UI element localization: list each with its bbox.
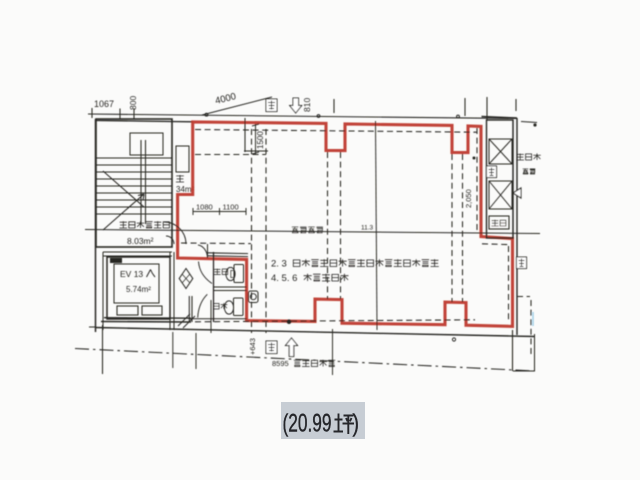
- svg-text:800: 800: [128, 96, 138, 110]
- svg-text:(20.99: (20.99: [283, 410, 332, 438]
- svg-text:810: 810: [302, 98, 312, 112]
- svg-text:2,050: 2,050: [464, 189, 473, 208]
- svg-text:8595: 8595: [272, 359, 289, 368]
- svg-text:): ): [353, 410, 360, 438]
- svg-text:11.3: 11.3: [361, 225, 374, 232]
- svg-text:2. 3: 2. 3: [271, 259, 287, 270]
- svg-text:5.74m²: 5.74m²: [126, 285, 151, 294]
- svg-text:1100: 1100: [223, 203, 239, 212]
- svg-text:1080: 1080: [196, 203, 213, 212]
- svg-text:4. 5. 6: 4. 5. 6: [271, 273, 297, 284]
- svg-text:4000: 4000: [214, 91, 237, 107]
- svg-text:+643: +643: [248, 338, 257, 355]
- svg-text:EV 13: EV 13: [120, 269, 143, 279]
- svg-text:1500: 1500: [256, 131, 265, 149]
- svg-text:8.03m²: 8.03m²: [127, 236, 154, 246]
- svg-text:1067: 1067: [94, 99, 114, 109]
